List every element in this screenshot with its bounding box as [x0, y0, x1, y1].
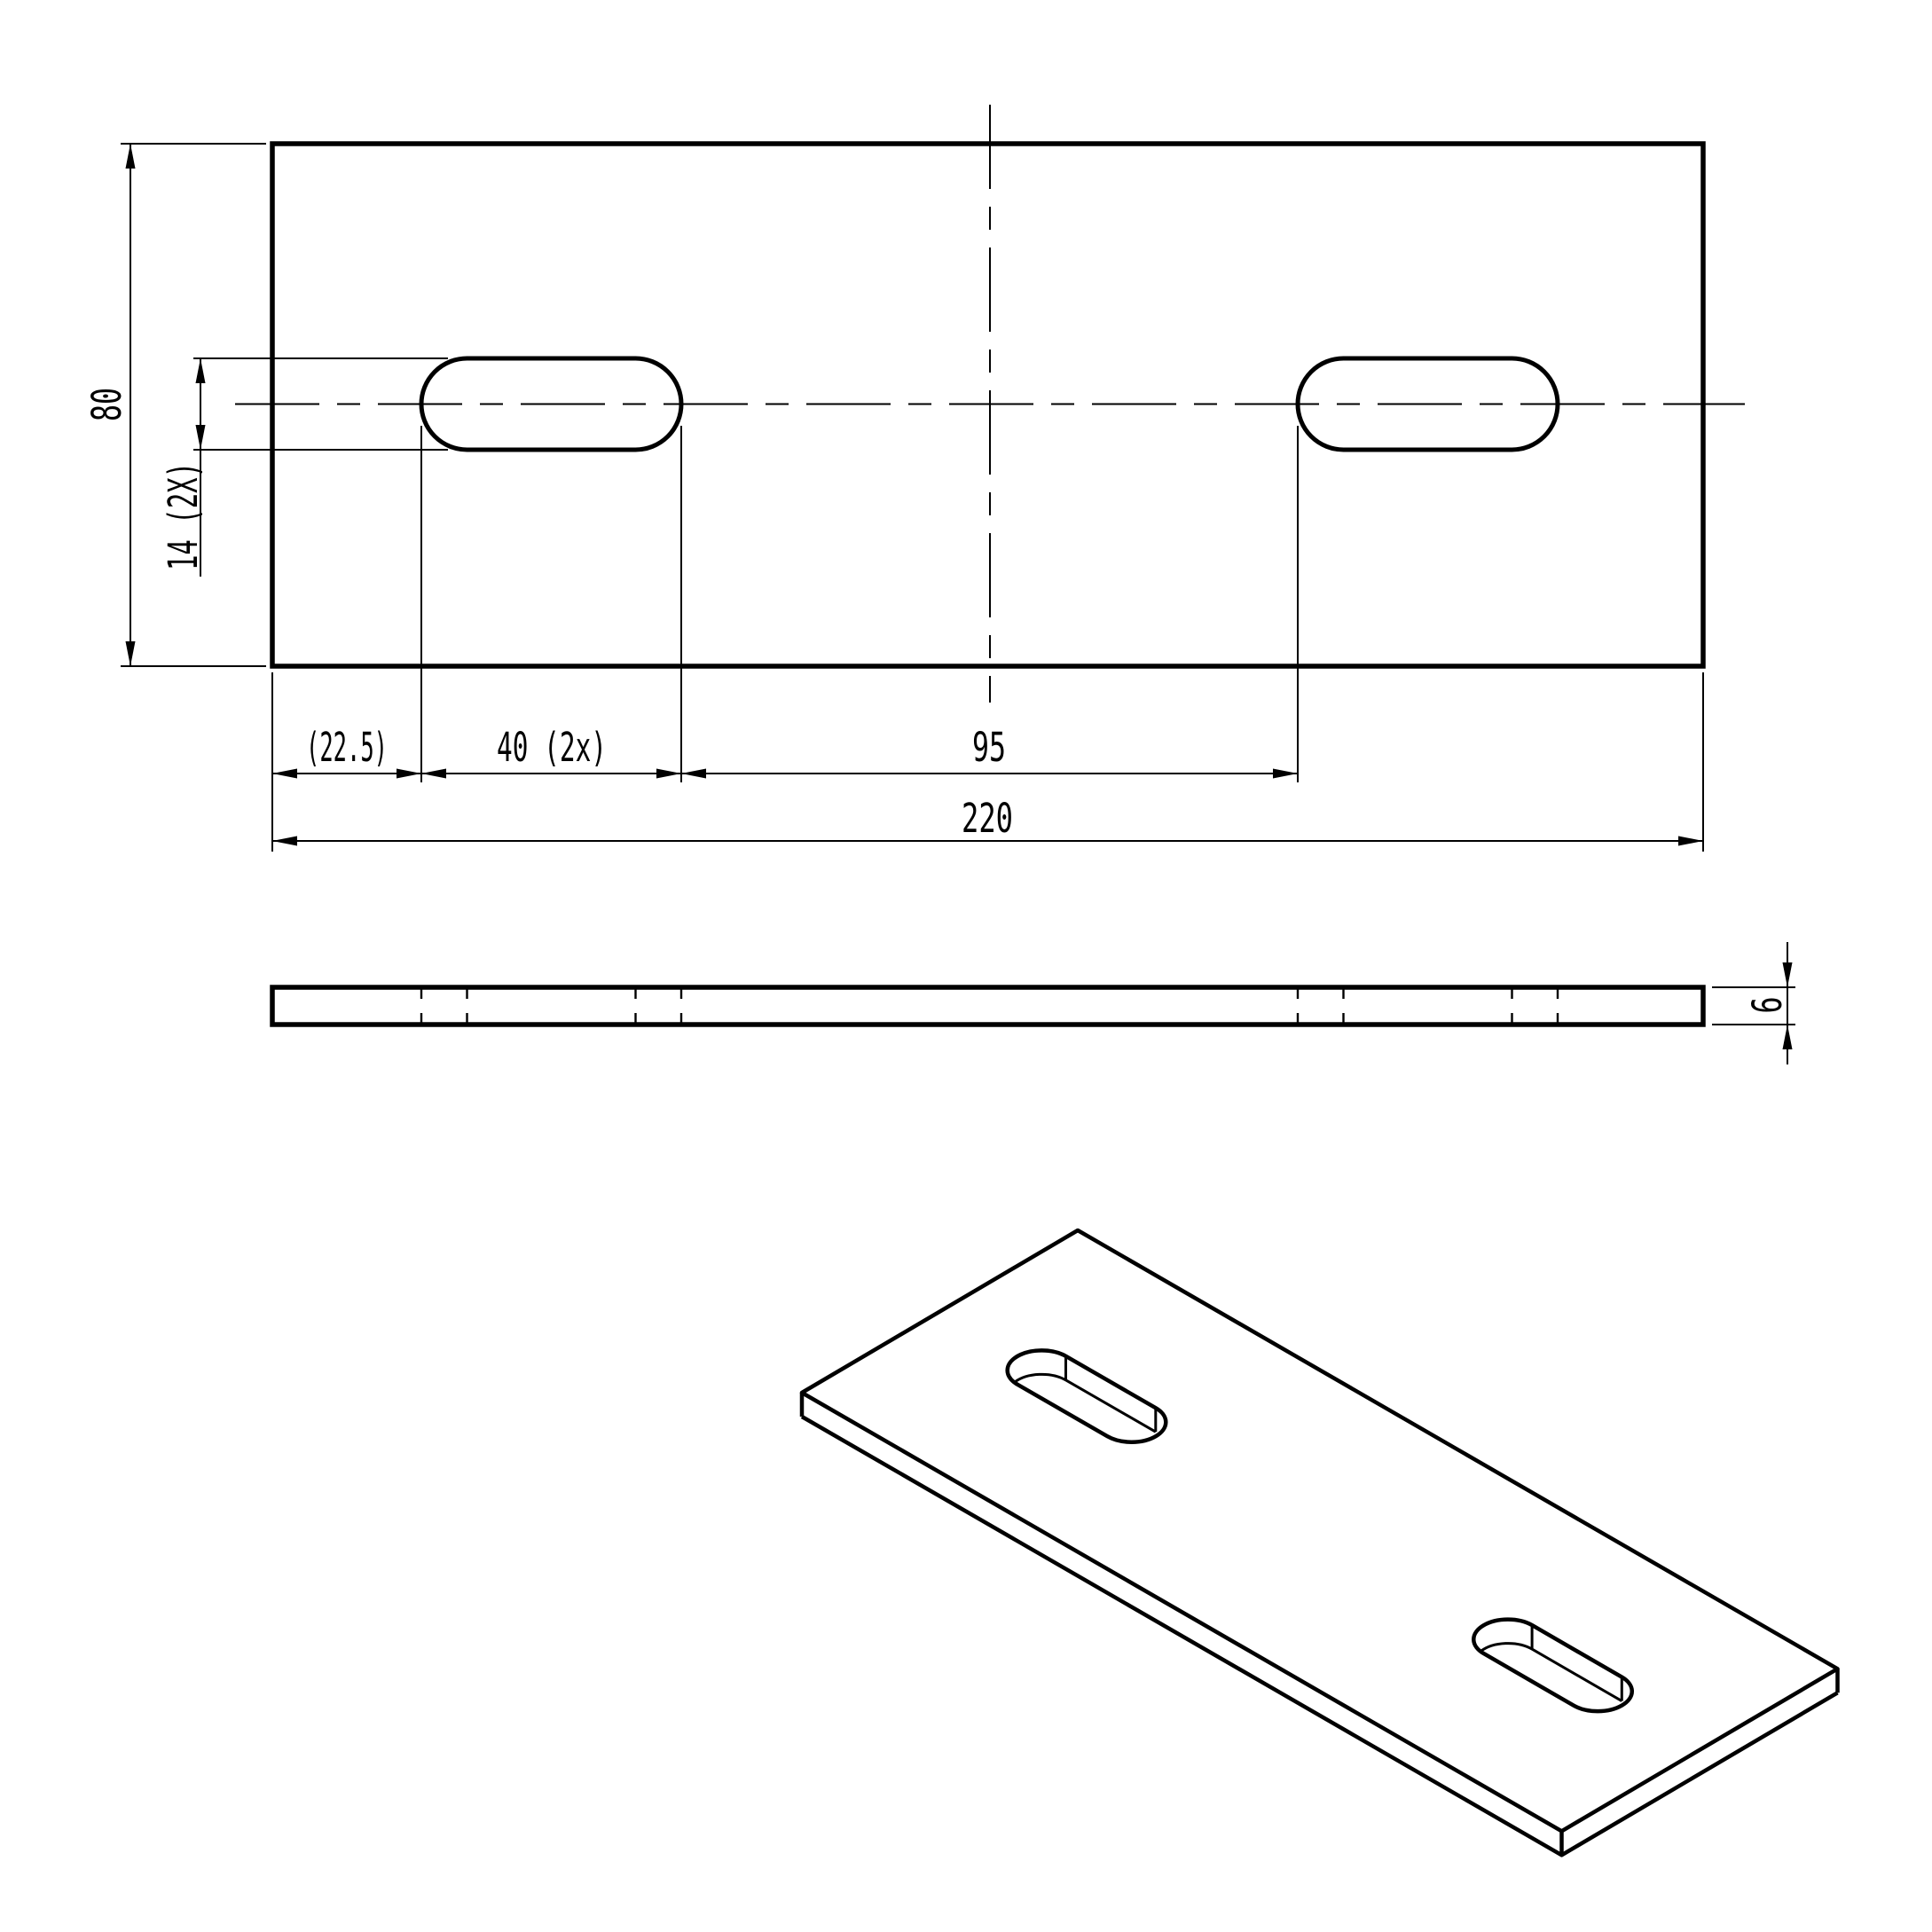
dim-6-arrow-top: [1783, 962, 1793, 987]
dim-80-text: 80: [83, 388, 130, 421]
dim-220-text: 220: [962, 795, 1013, 842]
dim-14-text: 14 (2X): [160, 462, 207, 570]
dim-95-text: 95: [972, 724, 1006, 771]
dim-row-lower: (22.5) 40 (2x) 95: [272, 426, 1703, 852]
dim-22_5-text: (22.5): [306, 724, 388, 771]
dim-80-arrow-bottom: [126, 641, 136, 666]
dim-22_5-arrow-right: [397, 769, 421, 779]
dim-14: 14 (2X): [160, 358, 448, 577]
dim-220-arrow-right: [1678, 836, 1703, 846]
drawing-sheet: 80 14 (2X) (22.5) 40 (2x): [0, 0, 1932, 1932]
dim-22_5-arrow-left: [272, 769, 297, 779]
side-view-plate-outline: [272, 987, 1703, 1025]
isometric-view: [802, 1230, 1838, 1855]
dim-40-arrow-right: [656, 769, 681, 779]
iso-slot2-outline: [1473, 1620, 1632, 1711]
dim-6-text: 6: [1744, 997, 1791, 1014]
dim-95-arrow-left: [681, 769, 706, 779]
dim-220: 220: [272, 795, 1703, 846]
technical-drawing-canvas: 80 14 (2X) (22.5) 40 (2x): [0, 0, 1932, 1932]
dim-80-arrow-top: [126, 144, 136, 169]
iso-top-face: [802, 1230, 1838, 1831]
dim-6-arrow-bottom: [1783, 1025, 1793, 1049]
dim-220-arrow-left: [272, 836, 297, 846]
dim-95-arrow-right: [1273, 769, 1298, 779]
dim-14-arrow-top: [196, 358, 206, 383]
dim-40-arrow-left: [421, 769, 446, 779]
front-view: 80 14 (2X) (22.5) 40 (2x): [83, 105, 1745, 852]
dim-40-text: 40 (2x): [497, 724, 607, 771]
dim-6: 6: [1712, 942, 1795, 1064]
dim-14-arrow-bottom: [196, 425, 206, 450]
side-view: 6: [272, 942, 1795, 1064]
iso-slot1-outline: [1008, 1350, 1166, 1441]
